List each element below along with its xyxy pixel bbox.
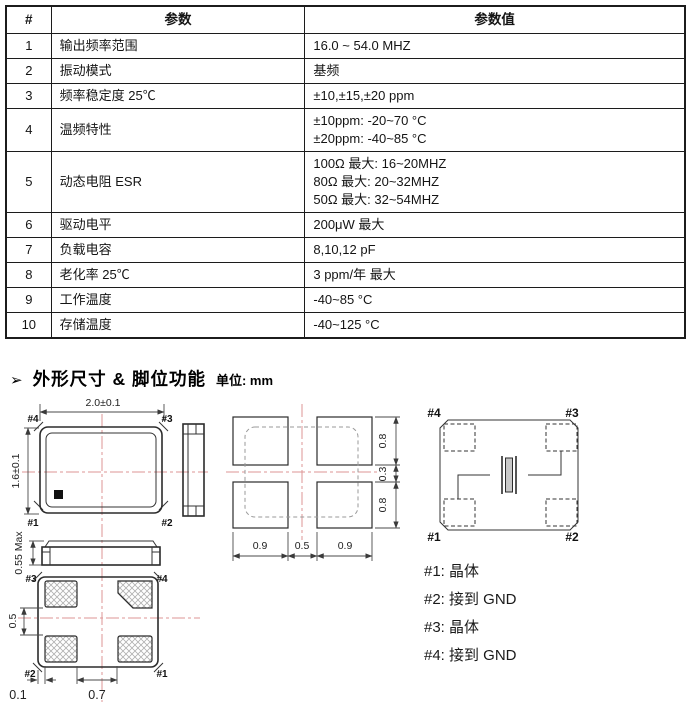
row-num: 5 [6,152,51,213]
pin-label: #1 [27,518,39,529]
row-num: 9 [6,288,51,313]
table-header-row: # 参数 参数值 [6,6,685,34]
section-heading: ➢ 外形尺寸 & 脚位功能 单位: mm [10,366,273,392]
row-value: 基频 [305,59,685,84]
dim-label-pad-pitch: 0.7 [88,688,105,702]
pin1-marker [54,490,63,499]
header-param: 参数 [51,6,305,34]
land-pattern-drawing: 0.9 0.5 0.9 0.8 0.3 0.8 [233,417,400,561]
pin-label: #3 [565,406,579,420]
dim-label-land-pad-height: 0.8 [377,498,389,513]
row-num: 4 [6,109,51,152]
front-view-drawing: 0.55 Max [13,531,160,575]
top-view-drawing: 2.0±0.1 1.6±0.1 #4 #3 #1 #2 [10,397,173,529]
pin-label: #4 [427,406,441,420]
table-row: 9 工作温度 -40~85 °C [6,288,685,313]
row-param: 输出频率范围 [51,34,305,59]
dim-label-land-gap-y: 0.3 [377,467,389,482]
row-value: ±10ppm: -20~70 °C ±20ppm: -40~85 °C [305,109,685,152]
row-num: 1 [6,34,51,59]
unit-label: 单位: mm [216,370,273,389]
pin-function-list: #1: 晶体 #2: 接到 GND #3: 晶体 #4: 接到 GND [424,563,517,664]
row-param: 负载电容 [51,238,305,263]
row-value: 8,10,12 pF [305,238,685,263]
pin-function-item: #4: 接到 GND [424,647,517,664]
pin-function-item: #3: 晶体 [424,619,479,636]
pin-label: #2 [24,669,36,680]
row-value: -40~125 °C [305,313,685,339]
dim-label-pad-gap: 0.5 [7,614,19,629]
row-value: ±10,±15,±20 ppm [305,84,685,109]
parameter-table: # 参数 参数值 1 输出频率范围 16.0 ~ 54.0 MHZ 2 振动模式… [5,5,686,339]
row-param: 振动模式 [51,59,305,84]
header-num: # [6,6,51,34]
row-value: 200μW 最大 [305,213,685,238]
row-value: 16.0 ~ 54.0 MHZ [305,34,685,59]
mechanical-drawing: 2.0±0.1 1.6±0.1 #4 #3 #1 #2 [0,390,691,717]
table-row: 10 存储温度 -40~125 °C [6,313,685,339]
table-row: 2 振动模式 基频 [6,59,685,84]
pin-function-item: #2: 接到 GND [424,591,517,608]
row-param: 老化率 25℃ [51,263,305,288]
table-row: 3 频率稳定度 25℃ ±10,±15,±20 ppm [6,84,685,109]
dim-label-land-pad-width: 0.9 [253,540,268,552]
dim-label-body-height: 1.6±0.1 [10,453,22,488]
row-num: 6 [6,213,51,238]
dim-label-land-pad-width: 0.9 [338,540,353,552]
table-row: 6 驱动电平 200μW 最大 [6,213,685,238]
row-param: 温频特性 [51,109,305,152]
row-num: 2 [6,59,51,84]
pin-label: #2 [565,530,579,544]
row-param: 动态电阻 ESR [51,152,305,213]
arrow-bullet-icon: ➢ [10,370,23,392]
bottom-pads [45,581,152,662]
row-num: 8 [6,263,51,288]
row-param: 存储温度 [51,313,305,339]
dim-label-land-pad-height: 0.8 [377,434,389,449]
table-row: 5 动态电阻 ESR 100Ω 最大: 16~20MHZ 80Ω 最大: 20~… [6,152,685,213]
bottom-view-drawing: #3 #4 #2 #1 0.5 [7,572,168,702]
row-num: 3 [6,84,51,109]
table-row: 7 负载电容 8,10,12 pF [6,238,685,263]
row-num: 7 [6,238,51,263]
crystal-symbol [458,451,561,499]
schematic-drawing: #4 #3 #1 #2 [427,406,579,544]
pin-label: #3 [25,574,37,585]
table-row: 8 老化率 25℃ 3 ppm/年 最大 [6,263,685,288]
header-value: 参数值 [305,6,685,34]
row-param: 工作温度 [51,288,305,313]
component-body-top [34,422,168,513]
dim-label-body-width: 2.0±0.1 [86,397,121,409]
dim-label-land-gap-x: 0.5 [295,540,310,552]
dim-label-pad-edge: 0.1 [9,688,26,702]
row-param: 频率稳定度 25℃ [51,84,305,109]
row-value: 100Ω 最大: 16~20MHZ 80Ω 最大: 20~32MHZ 50Ω 最… [305,152,685,213]
row-num: 10 [6,313,51,339]
table-row: 4 温频特性 ±10ppm: -20~70 °C ±20ppm: -40~85 … [6,109,685,152]
table-row: 1 输出频率范围 16.0 ~ 54.0 MHZ [6,34,685,59]
pin-label: #1 [156,669,168,680]
dim-label-thickness: 0.55 Max [13,531,25,575]
pin-label: #1 [427,530,441,544]
section-title: 外形尺寸 & 脚位功能 [33,366,206,391]
side-view-drawing [183,424,204,516]
row-value: -40~85 °C [305,288,685,313]
pin-label: #3 [161,414,173,425]
datasheet-page: # 参数 参数值 1 输出频率范围 16.0 ~ 54.0 MHZ 2 振动模式… [0,0,691,717]
pin-label: #4 [27,414,39,425]
pin-function-item: #1: 晶体 [424,563,479,580]
pin-label: #2 [161,518,173,529]
row-param: 驱动电平 [51,213,305,238]
row-value: 3 ppm/年 最大 [305,263,685,288]
